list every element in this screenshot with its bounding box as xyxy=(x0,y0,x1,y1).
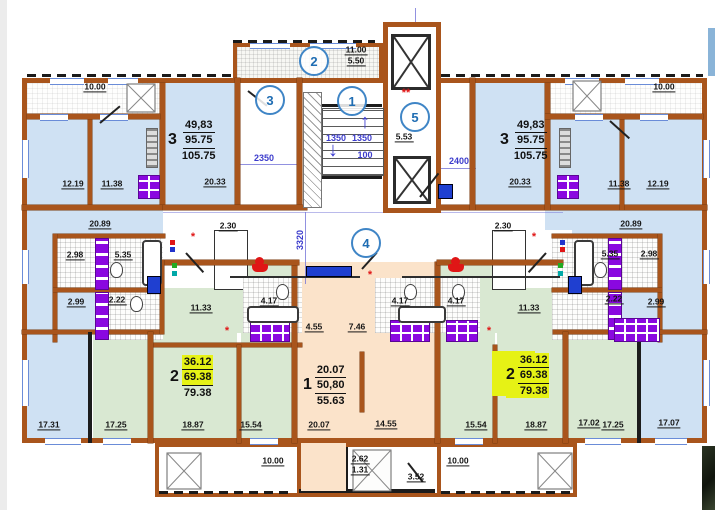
page-left-strip xyxy=(0,0,7,510)
red-asterisk: * xyxy=(368,269,372,281)
bath-cabinet-column xyxy=(608,238,622,290)
room-area-label: 2.98 xyxy=(640,248,659,259)
red-asterisk: * xyxy=(487,325,491,337)
red-asterisk: * xyxy=(532,231,536,243)
room-area-label: 2.30 xyxy=(219,220,238,231)
room-area-label: 2.99 xyxy=(647,296,666,307)
kitchen-sink-icon xyxy=(252,264,268,272)
apartment-area-value: 69.38 xyxy=(518,368,550,383)
apartment-areas: 20.0750,8055.63 xyxy=(315,363,347,408)
room-area-label: 10.00 xyxy=(446,455,469,466)
apartment-label-apt2-right: 236.1269.3879.38 xyxy=(506,353,549,398)
toilet xyxy=(594,262,607,278)
indicator-dot xyxy=(558,263,563,268)
wall-segment xyxy=(552,234,660,238)
apartment-label-apt3-left: 349,8395.75105.75 xyxy=(168,118,218,163)
window xyxy=(585,438,621,445)
window xyxy=(45,438,81,445)
room-area-label: 4.17 xyxy=(447,295,466,306)
indicator-dot xyxy=(560,240,565,245)
wall-segment xyxy=(235,78,240,210)
bath-cabinet-grid xyxy=(250,320,290,342)
wall-segment xyxy=(292,262,297,443)
room-area-label: 15.54 xyxy=(239,419,262,430)
room-area-label: 11.38 xyxy=(608,178,631,189)
wall-segment xyxy=(435,262,440,443)
apartment-number: 3 xyxy=(168,131,177,149)
room-area-label: 7.46 xyxy=(348,321,367,332)
bath-cabinet-grid xyxy=(614,318,660,342)
room-area-label: 2.22 xyxy=(108,294,127,305)
apartment-area-value: 55.63 xyxy=(315,394,347,408)
apartment-area-value: 49,83 xyxy=(515,118,547,133)
window xyxy=(703,360,710,406)
wall-segment xyxy=(152,343,302,347)
room-area-label: 11.33 xyxy=(190,302,213,313)
wall-meter-box xyxy=(438,184,453,199)
wall-segment xyxy=(22,330,162,334)
room-area-label: 17.31 xyxy=(37,419,60,430)
sill-dashes xyxy=(159,491,293,494)
red-asterisk: * xyxy=(225,325,229,337)
sill-dashes xyxy=(441,74,703,77)
apartment-area-value: 105.75 xyxy=(512,149,550,163)
room-area-label: 18.87 xyxy=(181,419,204,430)
balcony-cross-box xyxy=(572,80,602,112)
room-area-label: 11.38 xyxy=(101,178,124,189)
indicator-dot xyxy=(558,271,563,276)
window xyxy=(250,438,278,445)
room-area-label: 2.99 xyxy=(67,296,86,307)
apartment-number: 2 xyxy=(170,368,179,386)
bath-cabinet-column xyxy=(95,238,109,290)
wall-segment xyxy=(148,332,153,443)
window xyxy=(22,250,29,284)
room-area-label: 10.00 xyxy=(261,455,284,466)
apartment-label-apt2-left: 236.1269.3879.38 xyxy=(170,355,213,400)
room-area-label: 2.30 xyxy=(494,220,513,231)
wall-segment-dark xyxy=(88,332,92,443)
room-area-label: 17.25 xyxy=(601,419,624,430)
section-marker-2: 2 xyxy=(299,46,329,76)
room-area-label: 12.19 xyxy=(646,178,669,189)
wall-segment xyxy=(163,205,307,210)
elevator-x-icon xyxy=(394,37,428,87)
room-area-label: 15.54 xyxy=(464,419,487,430)
wall-segment xyxy=(55,234,165,238)
section-marker-1: 1 xyxy=(337,86,367,116)
wall-meter-box xyxy=(568,276,582,294)
kitchen-cabinet xyxy=(138,175,160,199)
balcony-cross-box xyxy=(126,83,156,113)
indicator-dot xyxy=(560,247,565,252)
bathtub xyxy=(398,306,446,323)
bath-cabinet-grid xyxy=(390,320,430,342)
stair-arrow-up: ↑ xyxy=(360,112,370,132)
dimension-label: 2350 xyxy=(254,153,274,163)
room-area-label: 2.62 xyxy=(351,453,370,464)
apartment-label-apt1-center: 120.0750,8055.63 xyxy=(303,363,346,408)
toilet xyxy=(130,296,143,312)
room-area-label: 11.33 xyxy=(518,302,541,313)
apartment-number: 3 xyxy=(500,131,509,149)
window xyxy=(22,360,29,406)
window xyxy=(22,140,29,178)
elevator-shaft-top xyxy=(391,34,431,90)
stair-landing-edge xyxy=(322,176,382,179)
sill-dashes xyxy=(441,491,573,494)
photo-fragment-corner xyxy=(702,446,715,510)
room-area-label: 5.53 xyxy=(395,131,414,142)
floor-plan-canvas: ↓ ↑ 10.0012.1911.3820.3311.005.505.5310.… xyxy=(0,0,715,510)
apartment-label-apt3-right: 349,8395.75105.75 xyxy=(500,118,550,163)
kitchen-counter-edge xyxy=(402,276,560,278)
wall-segment xyxy=(297,78,302,210)
room-area-label: 10.00 xyxy=(83,81,106,92)
wall-segment xyxy=(160,83,165,210)
apartment-areas: 49,8395.75105.75 xyxy=(180,118,218,163)
apartment-areas: 36.1269.3879.38 xyxy=(518,353,550,398)
section-marker-4: 4 xyxy=(351,228,381,258)
room-area-label: 2.98 xyxy=(66,249,85,260)
apartment-area-value: 79.38 xyxy=(182,386,214,400)
indicator-dot xyxy=(172,263,177,268)
indicator-dot xyxy=(170,247,175,252)
red-asterisk: * xyxy=(191,231,195,243)
room-area-label: 11.00 xyxy=(345,44,368,55)
bathtub xyxy=(247,306,299,323)
window-peek-strip xyxy=(708,28,715,76)
room-area-label: 18.87 xyxy=(524,419,547,430)
wall-segment xyxy=(360,352,364,412)
room-area-label: 2.22 xyxy=(605,293,624,304)
apartment-area-value: 36.12 xyxy=(182,355,214,370)
stove xyxy=(559,128,571,168)
window xyxy=(103,438,131,445)
apartment-area-value: 105.75 xyxy=(180,149,218,163)
indicator-dot xyxy=(170,240,175,245)
room-area-label: 12.19 xyxy=(61,178,84,189)
apartment-area-value: 79.38 xyxy=(518,384,550,398)
apartment-1-entry-area xyxy=(301,443,346,491)
room-area-label: 5.35 xyxy=(601,248,620,259)
toilet xyxy=(110,262,123,278)
apartment-area-value: 50,80 xyxy=(315,378,347,393)
sill-dashes xyxy=(27,74,233,77)
wall-segment xyxy=(22,205,163,210)
window xyxy=(250,43,290,49)
apartment-areas: 49,8395.75105.75 xyxy=(512,118,550,163)
apartment-number: 2 xyxy=(506,366,515,384)
wall-segment xyxy=(563,332,568,443)
section-marker-3: 3 xyxy=(255,85,285,115)
room-area-label: 5.35 xyxy=(114,249,133,260)
wall-segment xyxy=(493,345,497,443)
room-area-label: 17.02 xyxy=(577,417,600,428)
apartment-area-value: 20.07 xyxy=(315,363,347,378)
room-area-label: 17.07 xyxy=(657,417,680,428)
room-area-label: 14.55 xyxy=(374,418,397,429)
section-marker-5: 5 xyxy=(400,102,430,132)
dimension-label: 1350 xyxy=(326,133,346,143)
indicator-dot xyxy=(172,271,177,276)
dimension-label: 100 xyxy=(357,150,372,160)
room-area-label: 3.52 xyxy=(407,471,426,482)
elevator-shaft-bottom xyxy=(393,156,431,204)
bath-cabinet-grid xyxy=(446,320,478,342)
window xyxy=(703,250,710,284)
window xyxy=(40,114,68,121)
red-asterisk: ** xyxy=(402,87,411,99)
room-area-label: 20.07 xyxy=(307,419,330,430)
sill-dashes xyxy=(233,40,375,43)
window xyxy=(703,140,710,178)
room-area-label: 20.89 xyxy=(88,218,111,229)
balcony-cross-box xyxy=(537,452,573,490)
window xyxy=(640,114,668,121)
apartment-area-value: 95.75 xyxy=(183,133,215,148)
apartment-area-value: 95.75 xyxy=(515,133,547,148)
wall-segment xyxy=(545,114,703,119)
wall-meter-box xyxy=(147,276,161,294)
window xyxy=(575,114,603,121)
apartment-area-value: 49,83 xyxy=(183,118,215,133)
window xyxy=(455,438,483,445)
room-area-label: 4.17 xyxy=(391,295,410,306)
room-area-label: 1.31 xyxy=(351,464,370,475)
room-area-label: 4.17 xyxy=(260,295,279,306)
elevator-x-icon xyxy=(396,159,428,201)
room-area-label: 10.00 xyxy=(652,81,675,92)
apartment-areas: 36.1269.3879.38 xyxy=(182,355,214,400)
room-area-label: 4.55 xyxy=(305,321,324,332)
dimension-label: 3320 xyxy=(295,230,305,250)
counter-appliance xyxy=(306,266,352,277)
apartment-number: 1 xyxy=(303,376,312,394)
wall-segment-dark xyxy=(637,332,641,443)
stair-arrow-down: ↓ xyxy=(328,140,338,160)
wall-segment xyxy=(163,260,299,265)
window xyxy=(655,438,687,445)
room-area-label: 20.89 xyxy=(619,218,642,229)
stair-side-closet xyxy=(303,92,322,208)
dimension-label: 1350 xyxy=(352,133,372,143)
room-area-label: 5.50 xyxy=(347,55,366,66)
wall-segment xyxy=(470,78,475,210)
kitchen-sink-icon xyxy=(448,264,464,272)
apartment-area-value: 36.12 xyxy=(518,353,550,368)
kitchen-cabinet xyxy=(557,175,579,199)
dimension-label: 2400 xyxy=(449,156,469,166)
balcony-cross-box xyxy=(166,452,202,490)
window xyxy=(50,78,84,85)
wall-segment xyxy=(441,205,707,210)
room-area-label: 20.33 xyxy=(508,176,531,187)
room-area-label: 17.25 xyxy=(104,419,127,430)
stove xyxy=(146,128,158,168)
apartment-area-value: 69.38 xyxy=(182,370,214,385)
room-area-label: 20.33 xyxy=(203,176,226,187)
wall-segment xyxy=(88,118,92,210)
